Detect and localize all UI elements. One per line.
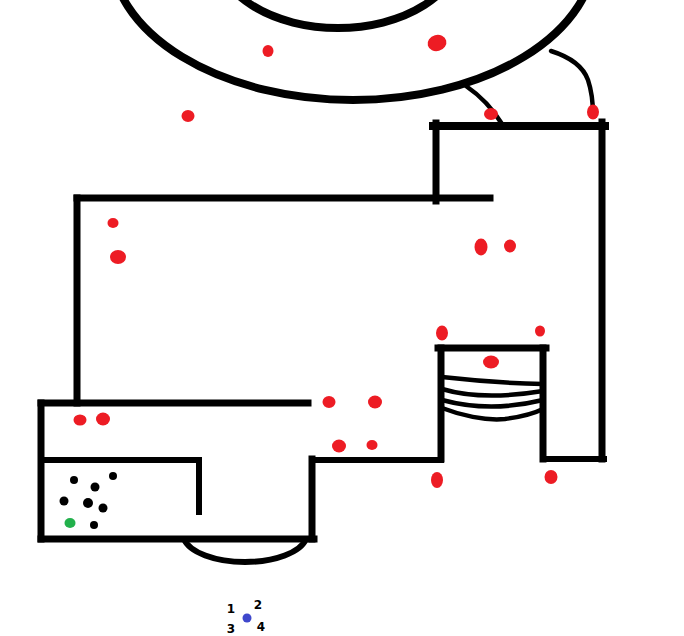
inner-ring: [216, 0, 460, 28]
coil-line: [442, 408, 543, 419]
green-dot: [65, 518, 76, 528]
red-dot: [587, 105, 599, 120]
coil-line: [442, 389, 543, 396]
red-dot: [263, 45, 274, 57]
black-dot: [70, 476, 78, 484]
paint-drawing: 1234: [0, 0, 684, 636]
red-dot: [96, 413, 110, 426]
map-label-3: 3: [227, 622, 235, 636]
map-label-2: 2: [254, 598, 262, 612]
black-dot: [83, 498, 93, 508]
red-dot: [484, 108, 498, 120]
black-dot: [91, 483, 100, 492]
rope-left: [466, 86, 502, 124]
red-dot: [332, 440, 346, 453]
red-dot: [367, 440, 378, 450]
red-dot: [74, 415, 87, 426]
blue-dot: [243, 614, 252, 623]
red-dot: [182, 110, 195, 122]
red-dot: [110, 250, 126, 264]
coil-line: [442, 377, 543, 384]
map-label-4: 4: [257, 620, 265, 634]
red-dot: [436, 326, 448, 341]
red-dot: [545, 470, 558, 484]
map-canvas: 1234: [0, 0, 684, 636]
coil-line: [442, 400, 543, 407]
rope-right: [551, 51, 593, 115]
red-dot: [323, 396, 336, 408]
black-dot: [60, 497, 69, 506]
red-dot: [431, 472, 443, 488]
red-dot: [475, 239, 488, 256]
red-dot: [368, 396, 382, 409]
outer-ring: [111, 0, 595, 100]
red-dot: [504, 240, 516, 253]
black-dot: [90, 521, 98, 529]
red-dot: [483, 356, 499, 369]
red-dot: [426, 33, 448, 53]
map-label-1: 1: [227, 602, 235, 616]
black-dot: [99, 504, 108, 513]
black-dot: [109, 472, 117, 480]
red-dot: [108, 218, 119, 228]
red-dot: [535, 326, 545, 337]
